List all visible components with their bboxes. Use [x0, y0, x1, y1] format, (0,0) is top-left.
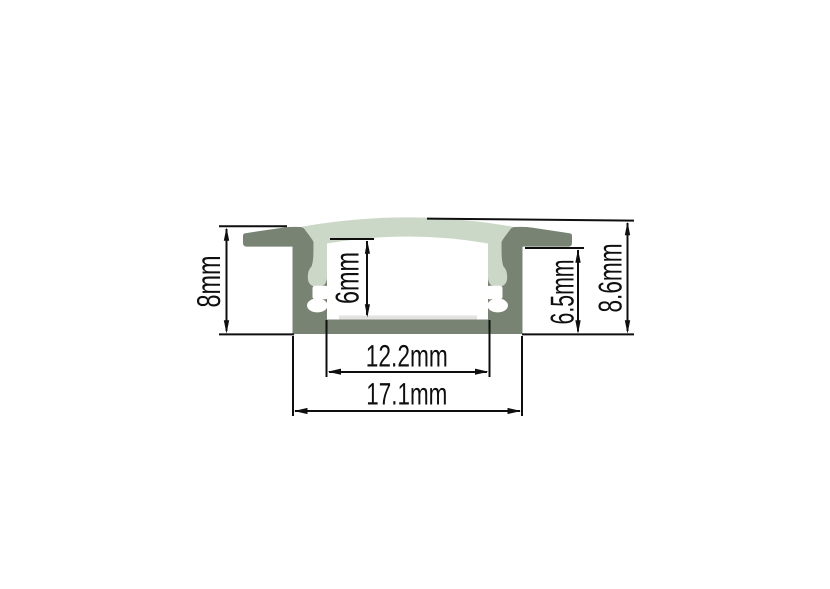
svg-text:6.5mm: 6.5mm — [544, 260, 581, 325]
svg-text:8mm: 8mm — [190, 256, 227, 308]
svg-text:12.2mm: 12.2mm — [366, 339, 448, 374]
svg-text:17.1mm: 17.1mm — [366, 377, 447, 412]
svg-text:8.6mm: 8.6mm — [592, 244, 629, 313]
svg-text:6mm: 6mm — [329, 252, 366, 304]
